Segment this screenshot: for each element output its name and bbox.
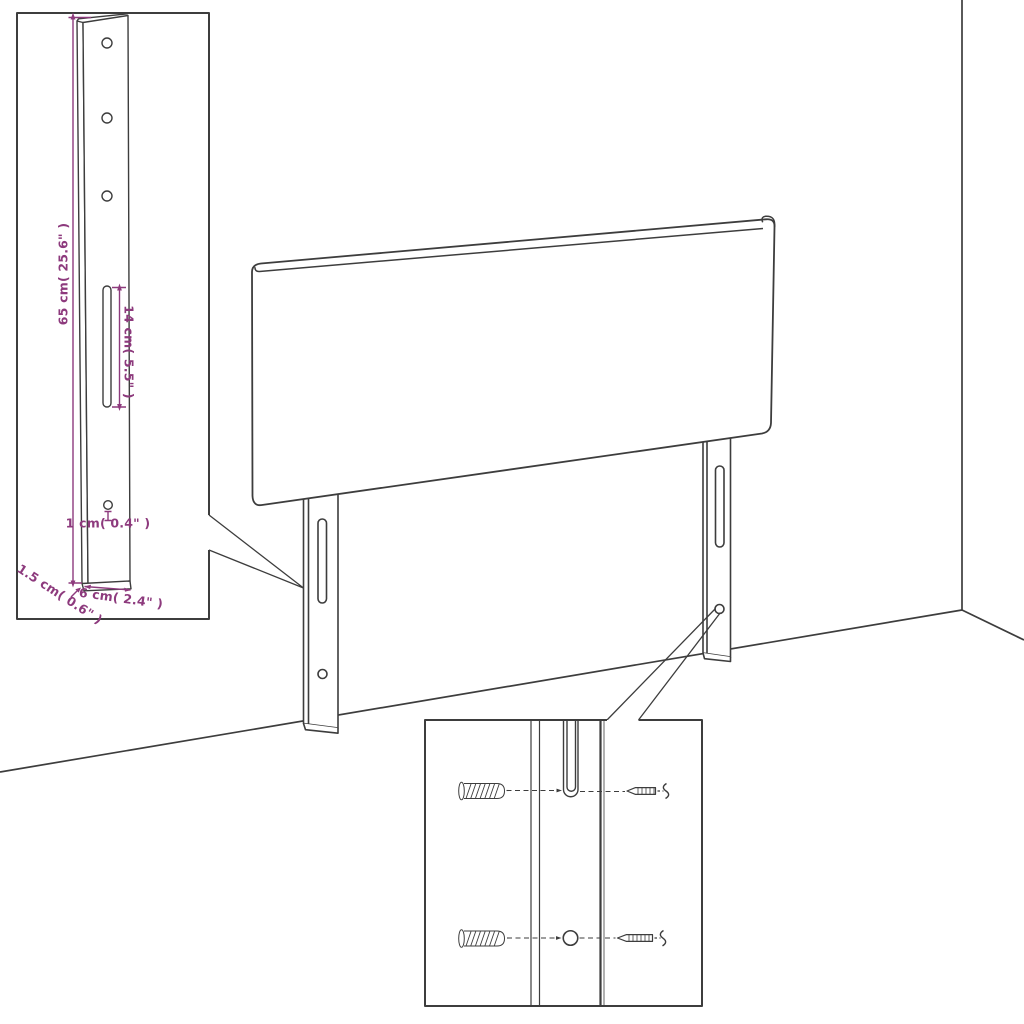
dimension-label-hole: 1 cm( 0.4" )	[66, 516, 151, 531]
callout-wedge-left	[209, 515, 304, 588]
diagram-artwork	[0, 0, 1024, 1024]
dimension-label-height: 65 cm( 25.6" )	[56, 223, 71, 325]
headboard-panel	[252, 216, 775, 505]
left-mounting-leg	[304, 492, 339, 734]
right-mounting-leg	[703, 437, 731, 662]
wall-mounting-inset	[425, 720, 702, 1006]
dimension-label-slot-length: 14 cm( 5.5" )	[122, 305, 137, 399]
leg-front-view	[77, 14, 131, 591]
assembly-diagram: 65 cm( 25.6" ) 14 cm( 5.5" ) 1 cm( 0.4" …	[0, 0, 1024, 1024]
